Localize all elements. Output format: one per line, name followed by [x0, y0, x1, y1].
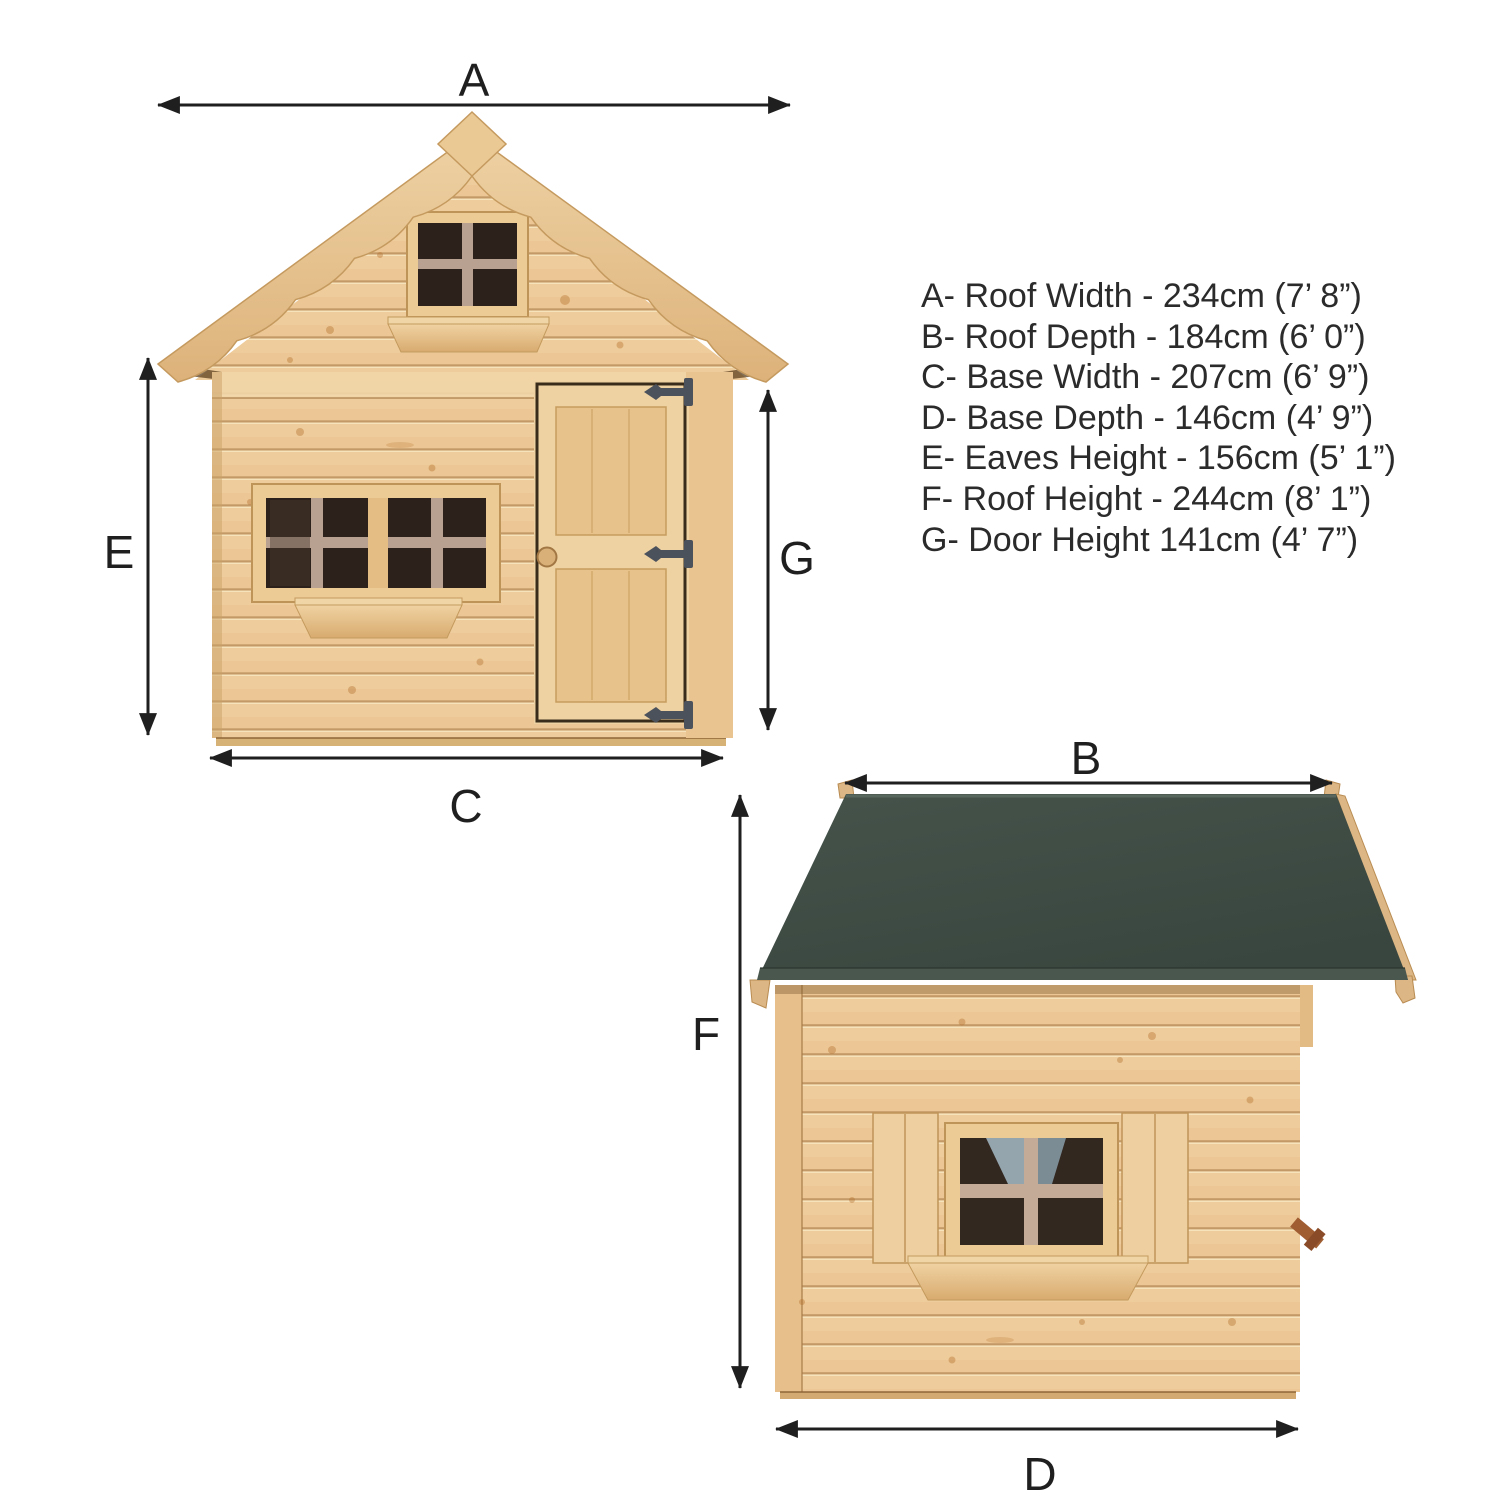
dimension-label-roof-height: F [692, 1008, 720, 1060]
gable-window [407, 212, 528, 317]
front-window [252, 484, 500, 602]
legend-item-base-depth: D- Base Depth - 146cm (4’ 9”) [921, 398, 1396, 439]
dimension-label-roof-width: A [459, 54, 490, 106]
side-window [945, 1123, 1118, 1260]
side-window-box [908, 1256, 1148, 1300]
side-roof [757, 794, 1408, 980]
front-elevation: A E C G [104, 54, 815, 832]
legend-item-door-height: G- Door Height 141cm (4’ 7”) [921, 520, 1396, 561]
door-jamb [686, 372, 733, 738]
front-window-box [295, 598, 462, 638]
front-base [216, 738, 726, 746]
front-door [534, 372, 733, 738]
gable-window-muntin-horizontal [418, 259, 517, 269]
side-window-right-shutter [1122, 1113, 1188, 1263]
legend-item-eaves-height: E- Eaves Height - 156cm (5’ 1”) [921, 438, 1396, 479]
side-base [780, 1392, 1296, 1399]
door-knob [538, 548, 557, 567]
gable-window-box [388, 317, 549, 352]
dimension-label-base-width: C [449, 780, 482, 832]
dimension-label-roof-depth: B [1071, 732, 1102, 784]
legend-item-base-width: C- Base Width - 207cm (6’ 9”) [921, 357, 1396, 398]
roof-felt-edge [757, 968, 1408, 980]
legend-item-roof-width: A- Roof Width - 234cm (7’ 8”) [921, 276, 1396, 317]
front-wall-edge-return [1300, 985, 1313, 1047]
door-panel-top [556, 407, 666, 535]
legend-item-roof-height: F- Roof Height - 244cm (8’ 1”) [921, 479, 1396, 520]
front-window-mullion [368, 498, 388, 588]
dimension-label-base-depth: D [1023, 1448, 1056, 1500]
side-window-left-shutter [873, 1113, 938, 1263]
side-window-muntin-horizontal [960, 1184, 1103, 1198]
dimension-label-eaves-height: E [104, 526, 135, 578]
product-dimension-diagram: A E C G [0, 0, 1500, 1500]
front-window-reflection [270, 500, 310, 586]
side-wall-corner-trim [775, 985, 802, 1392]
dimension-legend: A- Roof Width - 234cm (7’ 8”) B- Roof De… [921, 276, 1396, 560]
dimension-label-door-height: G [779, 532, 815, 584]
playhouse-diagram: A E C G [0, 0, 1500, 1500]
door-panel-bottom [556, 569, 666, 702]
legend-item-roof-depth: B- Roof Depth - 184cm (6’ 0”) [921, 317, 1396, 358]
side-elevation: B F D [692, 732, 1416, 1500]
